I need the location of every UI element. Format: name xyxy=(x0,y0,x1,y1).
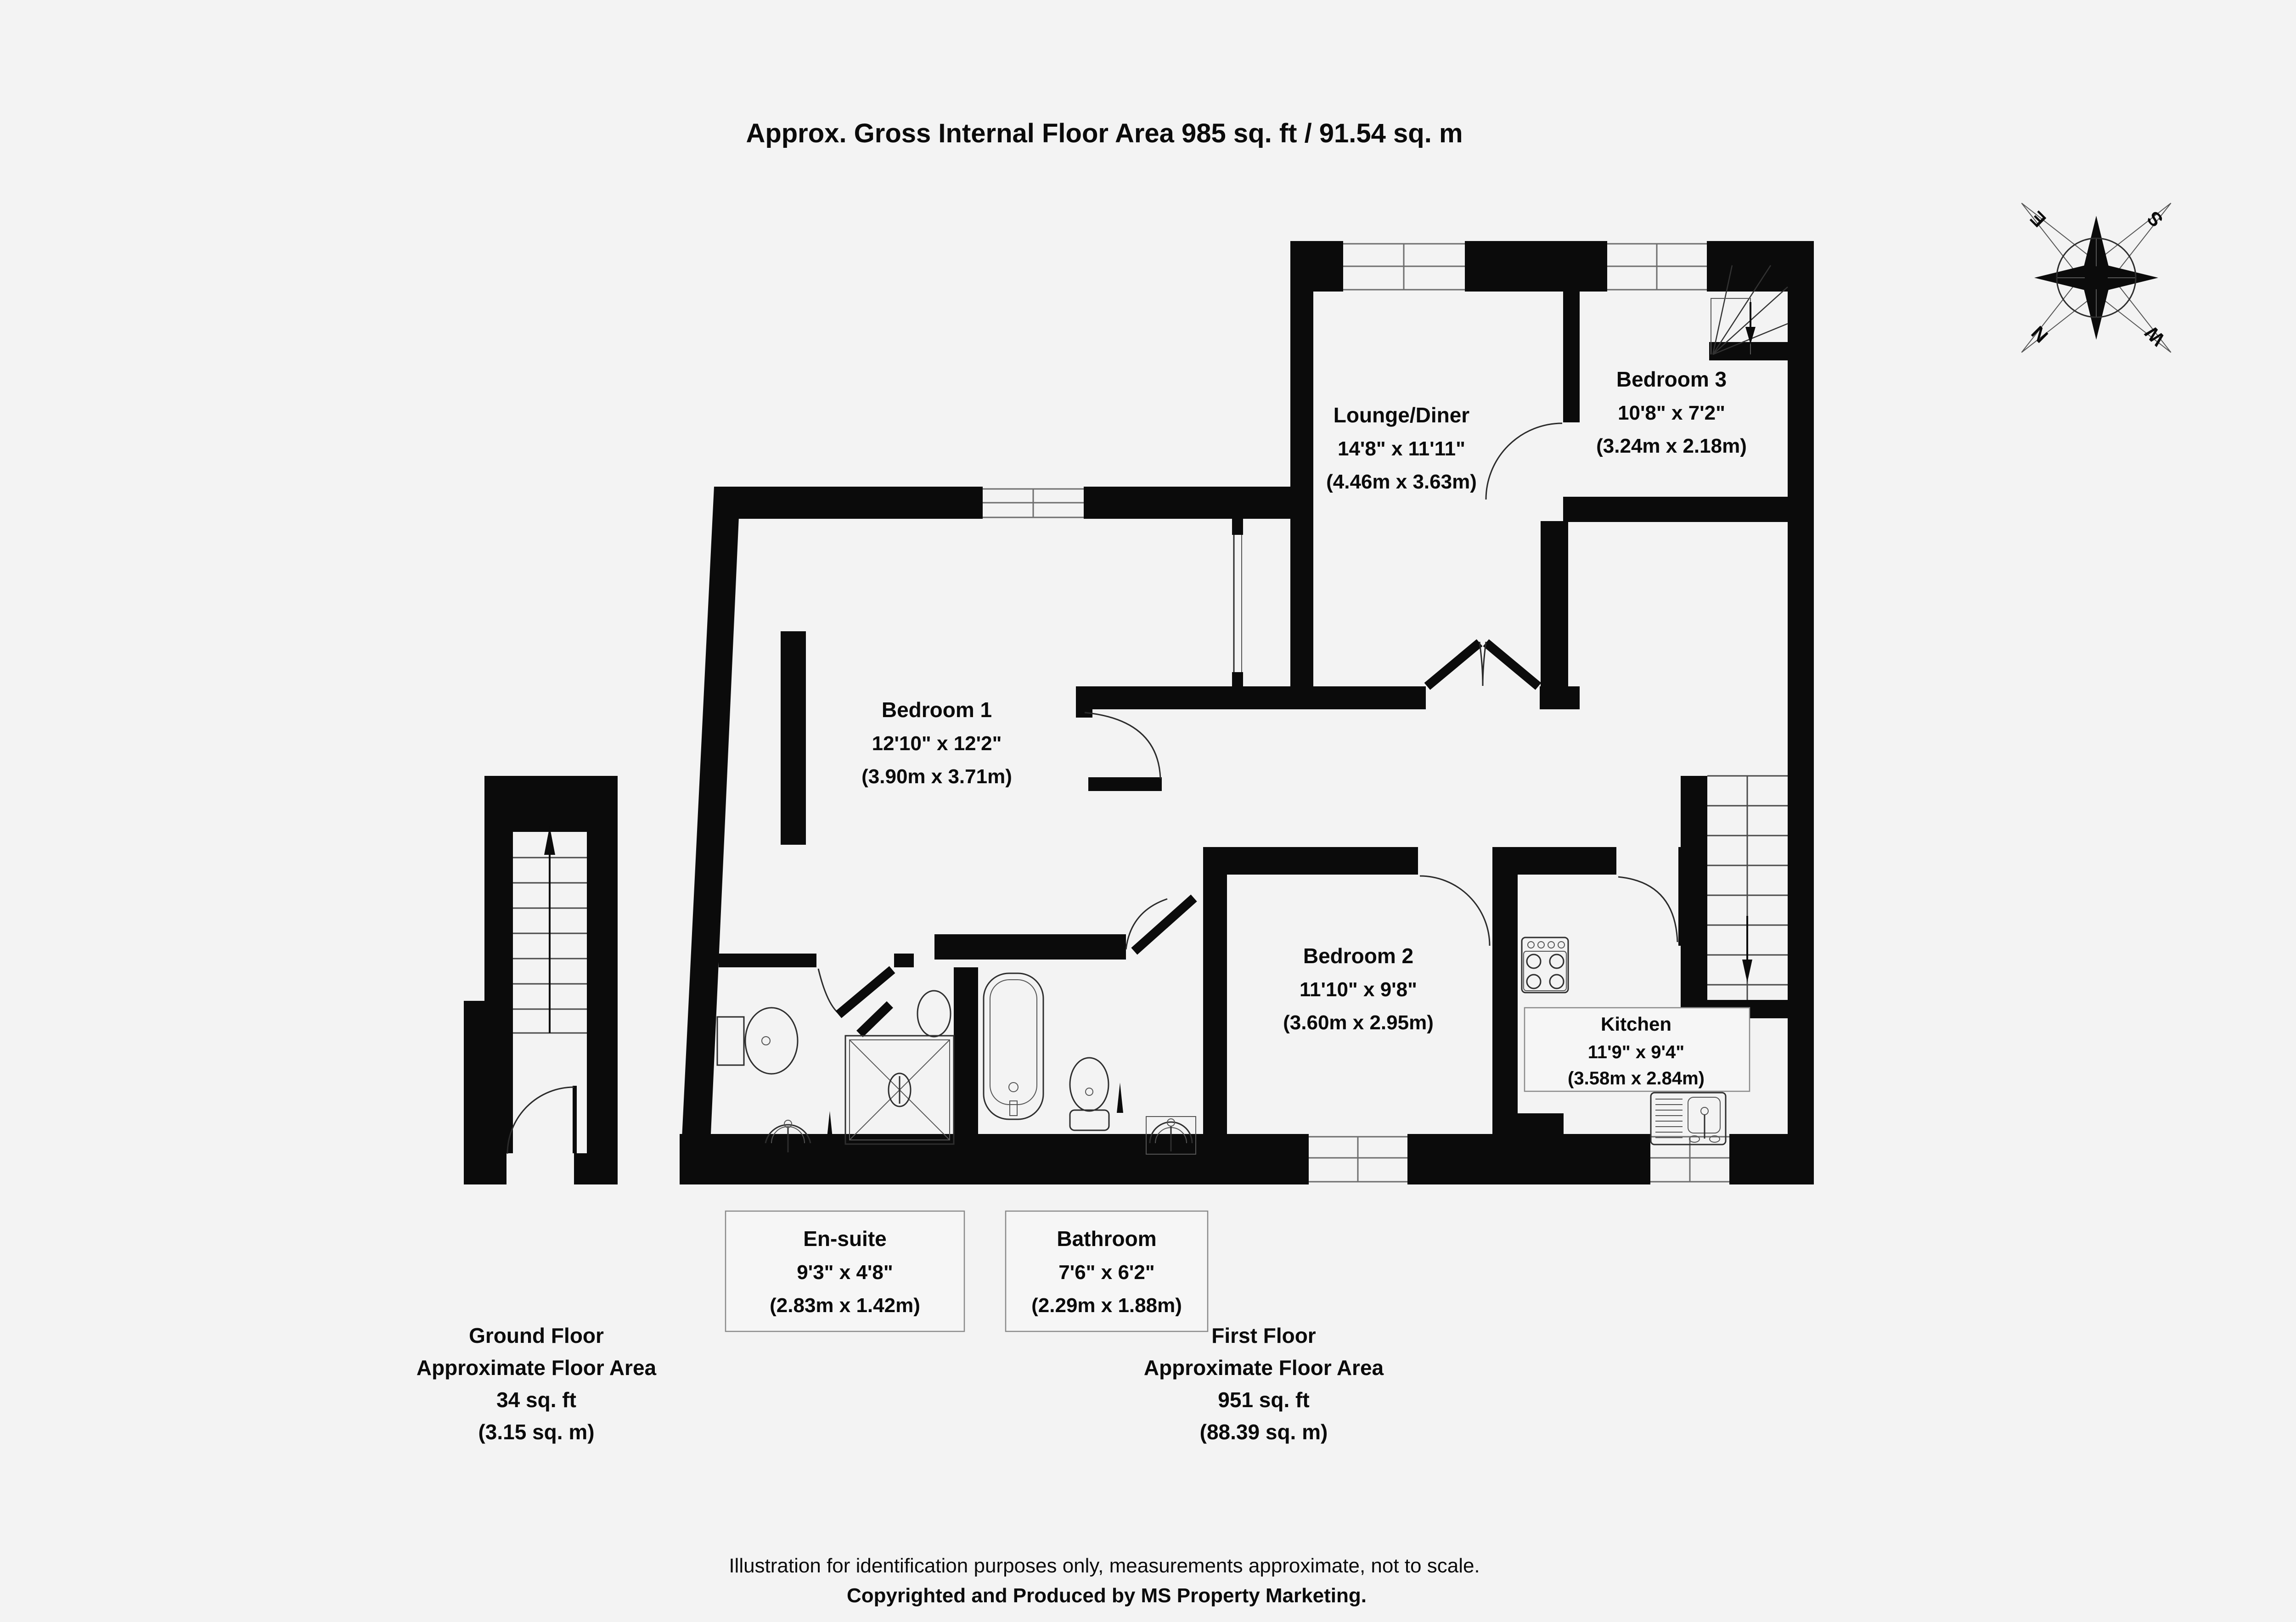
window-bedroom3-top xyxy=(1607,241,1707,292)
kitchen-corner-block xyxy=(1516,1113,1564,1141)
gf-area-label: Approximate Floor Area xyxy=(416,1356,657,1380)
gf-top-wall xyxy=(484,776,618,832)
outer-wall-left-slanted xyxy=(680,487,740,1184)
bedroom3-name: Bedroom 3 xyxy=(1616,367,1727,391)
kitchen-imperial: 11'9" x 9'4" xyxy=(1588,1042,1684,1062)
lounge-imperial: 14'8" x 11'11" xyxy=(1338,438,1465,460)
page-title: Approx. Gross Internal Floor Area 985 sq… xyxy=(746,118,1463,148)
bedroom1-inner-wall-stub xyxy=(781,631,806,845)
gf-door-stub xyxy=(573,1086,577,1153)
gf-name: Ground Floor xyxy=(469,1324,604,1347)
ensuite-fixtures xyxy=(717,991,954,1152)
bedroom2-label: Bedroom 2 11'10" x 9'8" (3.60m x 2.95m) xyxy=(1283,944,1434,1034)
ensuite-door-nub xyxy=(894,954,914,967)
gf-bottom-wall-right xyxy=(574,1153,618,1184)
bedroom1-name: Bedroom 1 xyxy=(882,698,992,722)
floorplan-canvas: Approx. Gross Internal Floor Area 985 sq… xyxy=(0,0,2296,1622)
bathroom-toilet xyxy=(1070,1058,1109,1130)
compass-s-label: S xyxy=(2143,207,2167,231)
ensuite-bathroom-divider xyxy=(954,967,978,1158)
bedroom1-metric: (3.90m x 3.71m) xyxy=(861,765,1012,788)
lounge-bedroom3-divider xyxy=(1563,262,1580,422)
kitchen-metric: (3.58m x 2.84m) xyxy=(1568,1068,1705,1089)
lounge-double-doors xyxy=(1427,642,1538,686)
ff-sqft: 951 sq. ft xyxy=(1218,1388,1309,1412)
bedroom2-left-wall xyxy=(1203,847,1227,1158)
bedroom1-imperial: 12'10" x 12'2" xyxy=(872,732,1002,755)
bathroom-label: Bathroom 7'6" x 6'2" (2.29m x 1.88m) xyxy=(1006,1211,1208,1331)
compass-e-label: E xyxy=(2026,207,2050,231)
ensuite-label: En-suite 9'3" x 4'8" (2.83m x 1.42m) xyxy=(726,1211,964,1331)
ensuite-door xyxy=(818,969,892,1034)
bedroom1-lounge-bottom-wall xyxy=(1076,686,1426,709)
ensuite-shower xyxy=(845,1036,954,1144)
copyright-text: Copyrighted and Produced by MS Property … xyxy=(847,1584,1367,1607)
ground-floor-structure xyxy=(464,776,618,1184)
lounge-label: Lounge/Diner 14'8" x 11'11" (4.46m x 3.6… xyxy=(1326,403,1477,493)
bathroom-name: Bathroom xyxy=(1057,1227,1156,1251)
bedroom1-side-window-stub-bottom xyxy=(1232,672,1243,709)
bathroom-marker-triangle xyxy=(1117,1083,1123,1113)
ensuite-imperial: 9'3" x 4'8" xyxy=(797,1261,893,1284)
bedroom3-imperial: 10'8" x 7'2" xyxy=(1618,402,1725,424)
compass-rose: N E S W xyxy=(1947,129,2246,427)
gf-stairs xyxy=(513,826,587,1033)
bedroom3-metric: (3.24m x 2.18m) xyxy=(1596,435,1747,457)
ff-area-label: Approximate Floor Area xyxy=(1144,1356,1384,1380)
ensuite-marker-triangle xyxy=(827,1111,833,1142)
lounge-bottom-wall-right xyxy=(1540,686,1580,709)
bedroom3-bottom-wall xyxy=(1563,497,1788,522)
gf-left-wall-upper xyxy=(484,832,513,1001)
compass-w-label: W xyxy=(2141,322,2169,350)
window-bedroom2-bottom xyxy=(1309,1134,1407,1184)
bedroom1-label: Bedroom 1 12'10" x 12'2" (3.90m x 3.71m) xyxy=(861,698,1012,788)
gf-sqm: (3.15 sq. m) xyxy=(478,1420,594,1444)
stair-enclosure-left-wall xyxy=(1681,776,1707,1000)
bedroom3-label: Bedroom 3 10'8" x 7'2" (3.24m x 2.18m) xyxy=(1596,367,1747,457)
bathroom-top-wall xyxy=(934,934,1126,960)
kitchen-hob xyxy=(1522,937,1568,993)
kitchen-name: Kitchen xyxy=(1601,1013,1671,1035)
bedroom1-door-arc xyxy=(1085,713,1160,779)
bedroom2-right-wall xyxy=(1492,847,1518,1158)
gf-entrance-door-arc xyxy=(507,1087,574,1154)
disclaimer-text: Illustration for identification purposes… xyxy=(729,1555,1480,1577)
bedroom1-vestibule-wall xyxy=(1088,777,1162,791)
hall-landing-divider xyxy=(1541,521,1568,709)
lounge-left-wall xyxy=(1290,241,1313,709)
bedroom2-top-wall xyxy=(1203,847,1418,875)
ground-floor-summary: Ground Floor Approximate Floor Area 34 s… xyxy=(416,1324,657,1444)
ff-name: First Floor xyxy=(1211,1324,1316,1347)
ensuite-name: En-suite xyxy=(803,1227,886,1251)
outer-wall-right xyxy=(1788,241,1814,1184)
bedroom2-metric: (3.60m x 2.95m) xyxy=(1283,1011,1434,1034)
window-lounge-top xyxy=(1343,241,1465,292)
lounge-metric: (4.46m x 3.63m) xyxy=(1326,471,1477,493)
bedroom3-door-arc xyxy=(1486,423,1562,500)
ff-sqm: (88.39 sq. m) xyxy=(1200,1420,1328,1444)
gf-left-wall-lower xyxy=(464,1001,513,1153)
bathroom-imperial: 7'6" x 6'2" xyxy=(1058,1261,1154,1284)
window-bedroom1-top xyxy=(983,487,1084,519)
gf-bottom-wall-left xyxy=(464,1153,506,1184)
first-floor-summary: First Floor Approximate Floor Area 951 s… xyxy=(1144,1324,1384,1444)
bedroom2-door-arc xyxy=(1420,876,1490,946)
gf-right-wall xyxy=(587,832,618,1153)
kitchen-label: Kitchen 11'9" x 9'4" (3.58m x 2.84m) xyxy=(1525,1008,1750,1091)
bedroom2-name: Bedroom 2 xyxy=(1303,944,1413,968)
ensuite-toilet-cistern xyxy=(717,1017,744,1065)
bedroom2-imperial: 11'10" x 9'8" xyxy=(1300,978,1417,1001)
outer-wall-bottom xyxy=(680,1134,1814,1184)
main-stairs-first-floor xyxy=(1707,776,1788,1000)
ensuite-metric: (2.83m x 1.42m) xyxy=(770,1294,920,1317)
gf-sqft: 34 sq. ft xyxy=(496,1388,576,1412)
ensuite-top-wall xyxy=(719,954,816,967)
bedroom1-side-window xyxy=(1234,535,1242,672)
ensuite-basin-oval xyxy=(917,991,951,1037)
bedroom1-side-window-stub-top xyxy=(1232,487,1243,535)
lounge-name: Lounge/Diner xyxy=(1334,403,1470,427)
kitchen-door-arc xyxy=(1618,877,1677,942)
kitchen-top-wall xyxy=(1518,847,1616,875)
bathroom-door xyxy=(1126,898,1194,951)
bathroom-fixtures xyxy=(984,973,1196,1154)
bathroom-metric: (2.29m x 1.88m) xyxy=(1031,1294,1182,1317)
ensuite-toilet-bowl xyxy=(745,1008,798,1074)
bathroom-bathtub xyxy=(984,973,1043,1119)
compass-n-label: N xyxy=(2027,322,2052,347)
